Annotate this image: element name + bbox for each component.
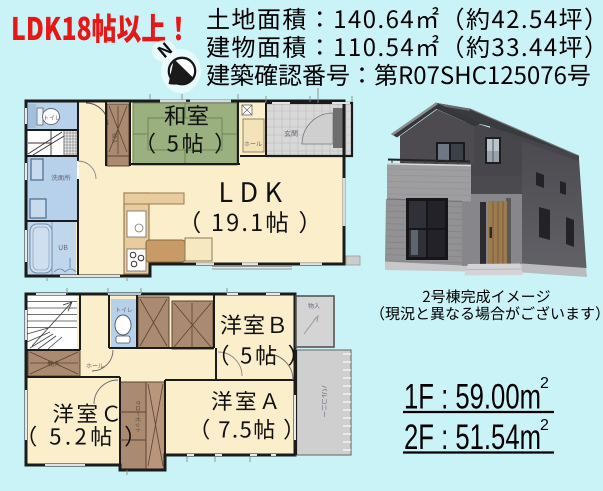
svg-text:2: 2	[540, 375, 549, 392]
svg-text:1F : 59.00m: 1F : 59.00m	[404, 378, 541, 417]
svg-text:2: 2	[540, 417, 549, 434]
svg-text:2F : 51.54m: 2F : 51.54m	[404, 418, 541, 457]
